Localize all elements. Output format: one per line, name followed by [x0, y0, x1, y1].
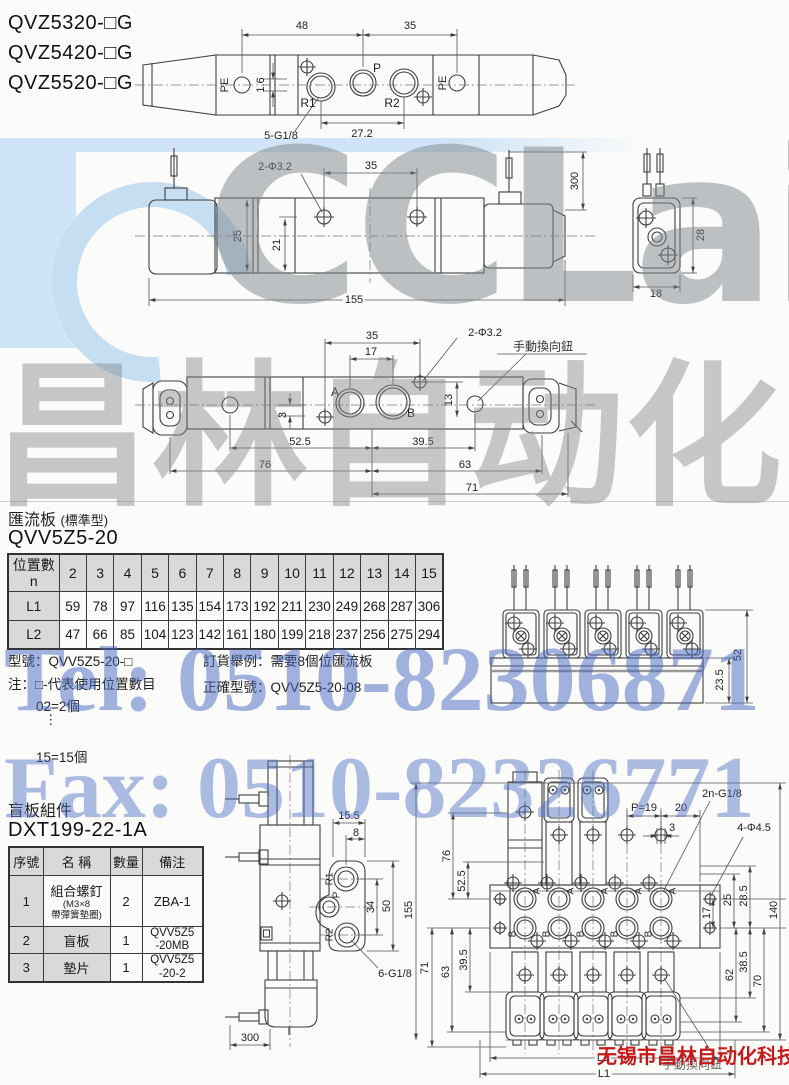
- dim-17: 17: [701, 907, 713, 919]
- dim-28-5: 28.5: [738, 885, 750, 906]
- port-label-b: B: [508, 931, 519, 938]
- dim-300: 300: [241, 1032, 259, 1044]
- note-correct-model: 正確型號：QVV5Z5-20-08: [203, 676, 361, 696]
- part-qty: 1: [110, 954, 142, 982]
- l2-value: 256: [361, 621, 388, 650]
- port-label-b: B: [542, 931, 553, 938]
- thread-callout-2n-g18: 2n-G1/8: [702, 788, 742, 800]
- col-header: 3: [86, 554, 113, 592]
- part-name: 墊片: [43, 954, 110, 982]
- l1-value: 97: [114, 592, 141, 621]
- drawing-manifold-front: 2n-G1/8 4-Φ4.5 P=19 20 3 155 76 52.5 71 …: [420, 770, 789, 1085]
- hole-callout-2-phi32: 2-Φ3.2: [468, 327, 502, 339]
- dim-21: 21: [271, 239, 283, 251]
- dim-18: 18: [648, 288, 664, 300]
- l1-value: 249: [333, 592, 360, 621]
- note-legend: 注：□-代表使用位置數目: [8, 673, 156, 693]
- l1-value: 135: [169, 592, 196, 621]
- part-name: 組合螺釘 (M3×8 帶彈簧墊圈): [43, 876, 110, 927]
- l2-value: 218: [306, 621, 333, 650]
- parts-row: 3 墊片 1 QVV5Z5 -20-2: [9, 954, 203, 982]
- l1-value: 116: [141, 592, 168, 621]
- dim-p19: P=19: [631, 802, 657, 814]
- drawing-front-view: 2-Φ3.2 35 25 21 155 300 28 18: [135, 140, 735, 325]
- port-label-b: B: [610, 931, 621, 938]
- dim-25: 25: [722, 894, 734, 906]
- part-name-sub: 帶彈簧墊圈): [44, 911, 110, 921]
- parts-row: 2 盲板 1 QVV5Z5 -20MB: [9, 927, 203, 954]
- catalog-page: QVZ5320-□G QVZ5420-□G QVZ5520-□G: [0, 0, 789, 1085]
- part-remark-line: QVV5Z5: [143, 927, 203, 940]
- port-label-a: A: [532, 888, 543, 895]
- l2-value: 180: [251, 621, 278, 650]
- dim-39-5: 39.5: [412, 436, 433, 448]
- model-number: QVZ5520-□G: [8, 68, 133, 98]
- l2-value: 199: [278, 621, 305, 650]
- port-label-a: A: [600, 888, 611, 895]
- table-row-l2: L2 47 66 85 104 123 142 161 180 199 218 …: [8, 621, 443, 650]
- dim-3: 3: [669, 822, 675, 834]
- part-qty: 1: [110, 927, 142, 954]
- port-label-pe: PE: [219, 78, 231, 93]
- l1-value: 230: [306, 592, 333, 621]
- part-name-main: 組合螺釘: [50, 884, 102, 899]
- col-header-name: 名 稱: [43, 847, 110, 876]
- dim-63: 63: [440, 966, 452, 978]
- drawing-manifold-front-lineart: [420, 770, 789, 1085]
- manifold-model: QVV5Z5-20: [8, 527, 118, 550]
- company-name-overlay: 无锡市昌林自动化科技: [597, 1040, 789, 1069]
- port-label-pe: PE: [437, 76, 449, 91]
- dim-15-5: 15.5: [338, 810, 359, 822]
- col-header: 5: [141, 554, 168, 592]
- dim-71: 71: [419, 962, 431, 974]
- dim-155: 155: [343, 294, 365, 306]
- dim-70: 70: [752, 975, 764, 987]
- corner-line2: n: [30, 573, 38, 589]
- dim-63: 63: [459, 459, 471, 471]
- part-no: 1: [9, 876, 43, 927]
- l2-value: 237: [333, 621, 360, 650]
- corner-line1: 位置數: [13, 557, 55, 573]
- port-label-p: P: [373, 61, 381, 75]
- dim-140: 140: [768, 901, 780, 919]
- dim-27-2: 27.2: [351, 128, 372, 140]
- l1-value: 211: [278, 592, 305, 621]
- col-header-no: 序號: [9, 847, 43, 876]
- l2-value: 47: [59, 621, 86, 650]
- col-header: 15: [415, 554, 443, 592]
- l1-value: 287: [388, 592, 415, 621]
- port-label-r2: R2: [325, 929, 336, 942]
- col-header: 11: [306, 554, 333, 592]
- blank-plate-model: DXT199-22-1A: [8, 819, 147, 842]
- hole-callout-4-phi45: 4-Φ4.5: [737, 822, 771, 834]
- col-header: 13: [361, 554, 388, 592]
- col-header: 4: [114, 554, 141, 592]
- hole-callout-2-phi32: 2-Φ3.2: [258, 161, 292, 173]
- l1-value: 268: [361, 592, 388, 621]
- dim-23-5: 23.5: [714, 669, 726, 690]
- l1-value: 192: [251, 592, 278, 621]
- dim-71: 71: [466, 482, 478, 494]
- dim-3: 3: [277, 412, 289, 418]
- dim-20: 20: [675, 802, 687, 814]
- part-no: 3: [9, 954, 43, 982]
- dim-52: 52: [732, 649, 744, 661]
- note-dots: ⋮: [44, 712, 58, 728]
- dim-39-5: 39.5: [458, 949, 470, 970]
- l1-value: 173: [224, 592, 251, 621]
- port-label-r1: R1: [300, 96, 315, 110]
- part-no: 2: [9, 927, 43, 954]
- dim-8: 8: [353, 827, 359, 839]
- model-number-list: QVZ5320-□G QVZ5420-□G QVZ5520-□G: [8, 8, 133, 98]
- col-header: 9: [251, 554, 278, 592]
- port-label-r1: R1: [325, 873, 336, 886]
- col-header: 6: [169, 554, 196, 592]
- col-header: 7: [196, 554, 223, 592]
- port-label-p: P: [332, 892, 343, 899]
- dim-52-5: 52.5: [289, 436, 310, 448]
- port-label-b: B: [644, 931, 655, 938]
- dim-155: 155: [403, 901, 415, 919]
- port-label-a: A: [566, 888, 577, 895]
- note-order-example: 訂貨舉例：需要8個位匯流板: [203, 650, 373, 670]
- l1-value: 306: [415, 592, 443, 621]
- l2-value: 123: [169, 621, 196, 650]
- parts-header-row: 序號 名 稱 數量 備注: [9, 847, 203, 876]
- note-02: 02=2個: [36, 695, 80, 715]
- manual-override-label: 手動換向鈕: [513, 338, 573, 355]
- manifold-dimension-table: 位置數 n 2 3 4 5 6 7 8 9 10 11 12 13 14 15 …: [7, 553, 444, 650]
- port-label-b: B: [576, 931, 587, 938]
- l2-value: 275: [388, 621, 415, 650]
- dim-13: 13: [443, 394, 455, 406]
- port-label-r2: R2: [384, 96, 399, 110]
- dim-76: 76: [441, 850, 453, 862]
- port-label-a: A: [331, 385, 339, 399]
- l2-value: 161: [224, 621, 251, 650]
- dim-l1: L1: [596, 1068, 612, 1080]
- dim-17: 17: [365, 346, 377, 358]
- col-header: 2: [59, 554, 86, 592]
- thread-callout-6-g18: 6-G1/8: [378, 968, 412, 980]
- col-header: 12: [333, 554, 360, 592]
- corner-header: 位置數 n: [8, 554, 59, 592]
- model-number: QVZ5320-□G: [8, 8, 133, 38]
- dim-52-5: 52.5: [456, 870, 468, 891]
- l2-value: 66: [86, 621, 113, 650]
- col-header: 10: [278, 554, 305, 592]
- part-remark-line: -20-2: [143, 968, 203, 981]
- part-remark-line: QVV5Z5: [143, 954, 203, 967]
- part-remark-line: -20MB: [143, 940, 203, 953]
- l2-value: 294: [415, 621, 443, 650]
- port-label-b: B: [407, 406, 415, 420]
- drawing-top-view-lineart: [135, 5, 575, 145]
- dim-35: 35: [365, 160, 377, 172]
- dim-300: 300: [569, 172, 581, 190]
- dim-34: 34: [365, 901, 377, 913]
- drawing-manifold-small-assembly: 23.5 52: [485, 555, 789, 760]
- l1-value: 59: [59, 592, 86, 621]
- l2-value: 104: [141, 621, 168, 650]
- col-header-qty: 數量: [110, 847, 142, 876]
- dim-25: 25: [232, 230, 244, 242]
- model-number: QVZ5420-□G: [8, 38, 133, 68]
- part-remark: ZBA-1: [142, 876, 203, 927]
- row-label-l2: L2: [8, 621, 59, 650]
- table-row-l1: L1 59 78 97 116 135 154 173 192 211 230 …: [8, 592, 443, 621]
- l2-value: 85: [114, 621, 141, 650]
- dim-35: 35: [366, 330, 378, 342]
- col-header-remark: 備注: [142, 847, 203, 876]
- parts-row: 1 組合螺釘 (M3×8 帶彈簧墊圈) 2 ZBA-1: [9, 876, 203, 927]
- col-header: 14: [388, 554, 415, 592]
- blank-plate-parts-table: 序號 名 稱 數量 備注 1 組合螺釘 (M3×8 帶彈簧墊圈) 2 ZBA-1…: [8, 846, 204, 983]
- dim-28: 28: [695, 229, 707, 241]
- row-label-l1: L1: [8, 592, 59, 621]
- dim-38-5: 38.5: [738, 951, 750, 972]
- part-remark: QVV5Z5 -20MB: [142, 927, 203, 954]
- dim-76: 76: [259, 459, 271, 471]
- dim-50: 50: [381, 900, 393, 912]
- col-header: 8: [224, 554, 251, 592]
- drawing-bottom-view: 35 17 2-Φ3.2 手動換向鈕 A B 3 13 52.5 39.5 76…: [135, 325, 680, 505]
- dim-1-6: 1.6: [255, 77, 267, 92]
- note-15: 15=15個: [36, 746, 87, 766]
- part-remark: QVV5Z5 -20-2: [142, 954, 203, 982]
- part-qty: 2: [110, 876, 142, 927]
- section-title-note: (標準型): [60, 513, 108, 528]
- section-title-blank-plate: 盲板組件: [8, 797, 72, 821]
- note-model: 型號：QVV5Z5-20-□: [8, 650, 132, 670]
- part-name: 盲板: [43, 927, 110, 954]
- dim-48: 48: [296, 20, 308, 32]
- l1-value: 154: [196, 592, 223, 621]
- port-label-a: A: [668, 888, 679, 895]
- l2-value: 142: [196, 621, 223, 650]
- drawing-top-view: 48 35 PE 1.6 R1 P R2 PE 27.2 5-G1/8: [135, 5, 575, 145]
- port-label-a: A: [634, 888, 645, 895]
- drawing-front-view-lineart: [135, 140, 735, 325]
- dim-62: 62: [724, 969, 736, 981]
- table-header-row: 位置數 n 2 3 4 5 6 7 8 9 10 11 12 13 14 15: [8, 554, 443, 592]
- part-name-sub: (M3×8: [44, 900, 110, 910]
- l1-value: 78: [86, 592, 113, 621]
- dim-35: 35: [404, 20, 416, 32]
